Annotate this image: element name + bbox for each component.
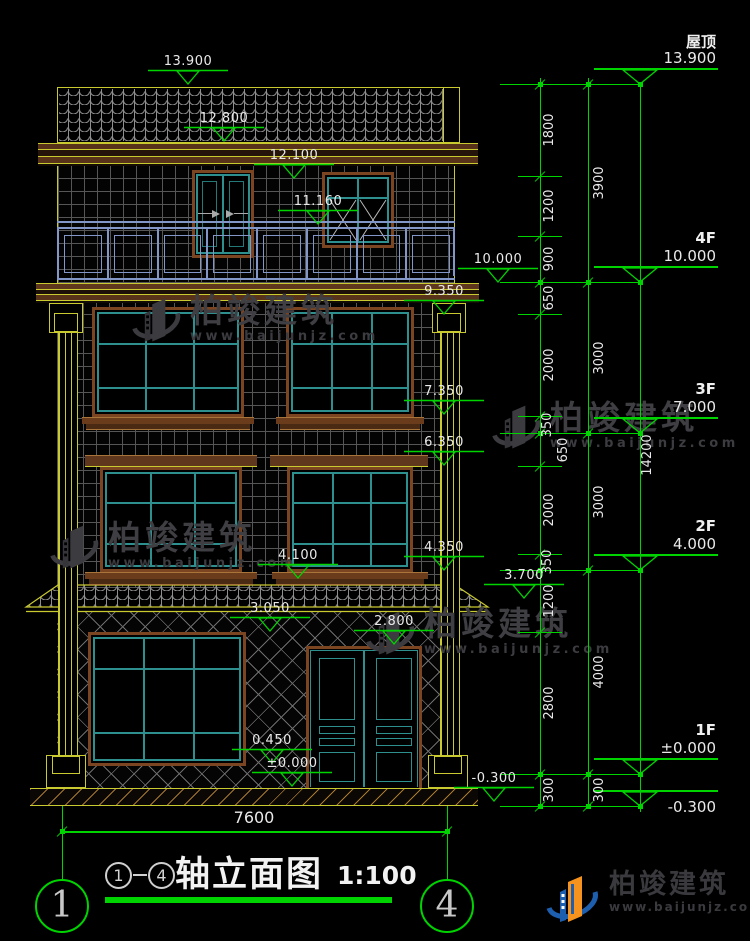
railing-bay [157, 229, 207, 278]
slide-arrow-line-right [234, 213, 248, 214]
railing-bay [107, 229, 157, 278]
pilaster-shaft-left [58, 333, 78, 755]
railing-bay [356, 229, 406, 278]
spot-elevation-marker: 3.050 [228, 601, 312, 637]
spot-elevation-marker: 12.800 [182, 111, 266, 147]
spot-elevation-value: 11.160 [276, 194, 360, 209]
railing-panel [363, 235, 401, 273]
width-dim-line [62, 831, 447, 833]
3f-window-right-transom [293, 343, 407, 345]
railing-bay [256, 229, 306, 278]
3f-sill-left [82, 417, 254, 424]
elevation-symbol [252, 163, 336, 180]
watermark-logo-icon [488, 400, 544, 456]
railing-panel [313, 235, 351, 273]
floor-level-value: 4.000 [600, 535, 716, 553]
3f-window-left-mullion [145, 314, 147, 410]
brand-logo-icon [543, 870, 601, 930]
elevation-symbol [182, 126, 266, 143]
3f-window-left-mullion [193, 314, 195, 410]
spot-elevation-marker: 10.000 [456, 252, 540, 288]
spot-elevation-value: 12.800 [182, 111, 266, 126]
dim-value-inner: 1200 [542, 569, 558, 633]
dim-node-square [586, 431, 591, 436]
1f-window-transom [95, 732, 239, 734]
spot-elevation-marker: 4.350 [402, 540, 486, 576]
elevation-symbol [452, 786, 536, 803]
spot-elevation-value: ±0.000 [250, 756, 334, 771]
3f-window-right-mullion [371, 314, 373, 410]
floor-level-value: 10.000 [600, 247, 716, 265]
dim-value-inner: 2800 [542, 671, 558, 735]
door-panel-right-3 [376, 752, 412, 782]
dim-value-outer: 4000 [592, 640, 608, 704]
floor-level-name: 4F [600, 229, 716, 247]
floor-level-name: 3F [600, 380, 716, 398]
spot-elevation-value: 0.450 [230, 733, 314, 748]
elevation-symbol [402, 450, 486, 467]
dim-node-square [586, 804, 591, 809]
door-panel-right-1 [376, 726, 412, 734]
pilaster-capital-left [49, 303, 83, 333]
pilaster-base-left [46, 755, 86, 788]
dim-node-square [586, 82, 591, 87]
3f-window-left-transom [99, 343, 237, 345]
spot-elevation-marker: 2.800 [352, 614, 436, 650]
spot-elevation-value: 13.900 [146, 54, 230, 69]
spot-elevation-value: 6.350 [402, 435, 486, 450]
2f-window-left-sash [105, 472, 237, 567]
elevation-symbol [402, 399, 486, 416]
spot-elevation-marker: 7.350 [402, 384, 486, 420]
spot-elevation-value: 4.350 [402, 540, 486, 555]
railing-end-post [453, 227, 455, 276]
railing-panel [164, 235, 202, 273]
elevation-symbol [352, 629, 436, 646]
overall-width-dim: 7600 [214, 808, 294, 827]
spot-elevation-value: 7.350 [402, 384, 486, 399]
dim-node-square [586, 772, 591, 777]
dim-node-square [60, 829, 65, 834]
axis-bubble-1: 1 [35, 879, 89, 933]
spot-elevation-value: 4.100 [256, 548, 340, 563]
railing-bay [405, 229, 455, 278]
railing-bay [57, 229, 107, 278]
1f-window-mullion [193, 639, 195, 759]
floor-level-value: 7.000 [600, 398, 716, 416]
spot-elevation-marker: 4.100 [256, 548, 340, 584]
title-axis-ref-end: 4 [148, 862, 175, 889]
railing-bay [306, 229, 356, 278]
spot-elevation-value: 10.000 [456, 252, 540, 267]
floor-level-symbol [622, 267, 658, 284]
dim-node-square [586, 568, 591, 573]
pilaster-capital-inner-left [54, 313, 78, 332]
spot-elevation-marker: -0.300 [452, 771, 536, 807]
spot-elevation-value: 12.100 [252, 148, 336, 163]
elevation-symbol [456, 267, 540, 284]
3f-window-right-sash [291, 312, 409, 412]
elevation-drawing-canvas: 14轴立面图1:100 1 4 7600 14200 柏竣建筑 www.baij… [0, 0, 750, 941]
3f-window-left-transom [99, 387, 237, 389]
brand-logo-name: 柏竣建筑 [609, 870, 750, 900]
2f-window-left-mullion [194, 474, 196, 565]
door-panel-left-2 [319, 738, 355, 746]
spot-elevation-value: -0.300 [452, 771, 536, 786]
door-panel-left-1 [319, 726, 355, 734]
3f-sill-right-step [280, 424, 420, 430]
2f-sill-left [85, 572, 257, 579]
title-underline [105, 897, 392, 903]
3f-window-right-transom [293, 387, 407, 389]
2f-window-left-transom [107, 543, 235, 545]
floor-level-name: 1F [600, 721, 716, 739]
floor-level-value: ±0.000 [600, 739, 716, 757]
dim-value-inner: 2000 [542, 333, 558, 397]
spot-elevation-marker: 11.160 [276, 194, 360, 230]
3f-window-right-mullion [331, 314, 333, 410]
3f-sill-left-step [86, 424, 250, 430]
pilaster-base-inner-left [52, 756, 80, 774]
dim-node-square [445, 829, 450, 834]
2f-window-head-left [85, 455, 257, 467]
dim-node-square [538, 82, 543, 87]
brand-logo: 柏竣建筑 www.baijunjz.com [543, 870, 750, 930]
railing-panel [263, 235, 301, 273]
dim-value-inner: 350 [540, 393, 556, 457]
entry-door-meeting-stile [363, 651, 365, 787]
dim-chain-line-outer [588, 78, 589, 806]
overall-height-dim: 14200 [640, 423, 656, 487]
2f-window-right-transom [294, 543, 406, 545]
spot-elevation-marker: ±0.000 [250, 756, 334, 792]
dim-value-inner: 650 [556, 418, 572, 482]
title-dash [133, 874, 147, 876]
railing-panel [412, 235, 450, 273]
dim-value-inner: 300 [542, 758, 558, 822]
dim-value-inner: 1800 [542, 98, 558, 162]
drawing-scale: 1:100 [337, 861, 417, 890]
2f-window-right-mullion [370, 474, 372, 565]
elevation-symbol [402, 555, 486, 572]
railing-panel [114, 235, 152, 273]
elevation-symbol [250, 771, 334, 788]
floor-level-symbol [622, 759, 658, 776]
elevation-symbol [402, 299, 486, 316]
2f-window-left-mullion [150, 474, 152, 565]
slide-arrow-line-left [198, 213, 212, 214]
3f-window-left [92, 307, 244, 417]
spot-elevation-value: 3.050 [228, 601, 312, 616]
floor-level-value: -0.300 [600, 798, 716, 816]
spot-elevation-marker: 12.100 [252, 148, 336, 184]
brand-logo-site: www.baijunjz.com [609, 900, 750, 914]
3f-window-right [286, 307, 414, 417]
1f-window-sash [93, 637, 241, 761]
door-panel-left-0 [319, 658, 355, 720]
floor-extension-line [500, 84, 642, 85]
1f-window-mullion [143, 639, 145, 759]
width-dim-ext-left [62, 806, 63, 880]
slide-arrow-icon-left [212, 210, 220, 218]
floor-level-name: 2F [600, 517, 716, 535]
drawing-title: 轴立面图 [175, 856, 323, 894]
spot-elevation-marker: 6.350 [402, 435, 486, 471]
elevation-symbol [276, 209, 360, 226]
elevation-symbol [146, 69, 230, 86]
dim-value-outer: 3900 [592, 151, 608, 215]
2f-window-left-transom [107, 502, 235, 504]
floor-level-symbol [622, 69, 658, 86]
floor-level-symbol [622, 555, 658, 572]
1f-window [88, 632, 246, 766]
dim-node-square [586, 280, 591, 285]
1f-window-transom [95, 668, 239, 670]
railing-bay [206, 229, 256, 278]
railing-bottom-rail [57, 278, 455, 280]
axis-bubble-4: 4 [420, 879, 474, 933]
2f-window-left [100, 467, 242, 572]
spot-elevation-marker: 13.900 [146, 54, 230, 90]
door-panel-right-2 [376, 738, 412, 746]
balcony-railing [57, 221, 455, 280]
elevation-symbol [228, 616, 312, 633]
floor-level-value: 13.900 [600, 49, 716, 67]
2f-window-right-transom [294, 502, 406, 504]
door-panel-right-0 [376, 658, 412, 720]
railing-panel [213, 235, 251, 273]
spot-elevation-value: 9.350 [402, 284, 486, 299]
2f-sill-left-step [89, 579, 253, 585]
elevation-symbol [256, 563, 340, 580]
dim-value-inner: 650 [542, 266, 558, 330]
spot-elevation-marker: 9.350 [402, 284, 486, 320]
3f-window-left-sash [97, 312, 239, 412]
spot-elevation-value: 2.800 [352, 614, 436, 629]
slide-arrow-icon-right [226, 210, 234, 218]
railing-panel [64, 235, 102, 273]
title-axis-ref-start: 1 [105, 862, 132, 889]
